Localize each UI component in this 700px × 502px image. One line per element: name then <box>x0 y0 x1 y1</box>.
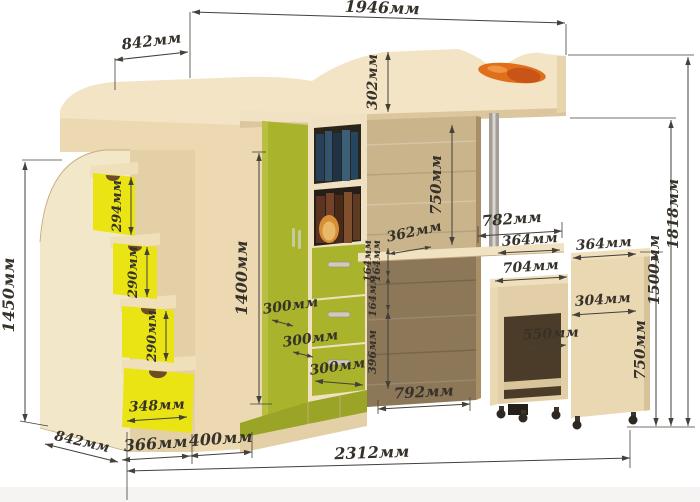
dim-arrowhead <box>110 457 118 462</box>
caster-wheel <box>552 411 561 420</box>
dim-arrowhead <box>668 418 673 426</box>
caster-wheel <box>629 416 638 425</box>
dim-arrowhead <box>182 454 190 459</box>
dim-label-step3_height: 290мм <box>145 310 160 363</box>
dim-label-rail_height: 302мм <box>365 54 381 110</box>
dim-line-base_width_2 <box>190 452 252 456</box>
dim-label-desk_inner_width: 704мм <box>502 257 559 277</box>
dim-arrowhead <box>115 56 123 61</box>
diagram-svg: 1946мм842мм302мм750мм1400мм294мм290мм290… <box>0 0 700 502</box>
dim-label-bottom_drawer_width: 348мм <box>128 397 185 416</box>
dim-label-niche_width: 792мм <box>393 381 454 402</box>
dim-arrowhead <box>685 418 690 426</box>
dim-arrowhead <box>653 418 658 426</box>
dim-arrowhead <box>127 468 135 473</box>
dim-arrowhead <box>668 120 673 128</box>
wardrobe-door-highlight <box>262 121 268 423</box>
dim-label-lower_section_height: 396мм <box>366 330 379 374</box>
dim-arrowhead <box>192 10 200 15</box>
dim-arrowhead <box>180 50 188 55</box>
dim-arrowhead <box>22 414 27 422</box>
back-panel-edge <box>476 116 481 400</box>
caster-wheel <box>519 414 528 423</box>
drawer-1-handle <box>328 262 350 267</box>
furniture-dimension-diagram: 1946мм842мм302мм750мм1400мм294мм290мм290… <box>0 0 700 502</box>
dim-arrowhead <box>378 406 386 411</box>
wardrobe-door <box>262 121 308 423</box>
dim-arrowhead <box>622 456 630 461</box>
dim-label-stairs_height: 1450мм <box>0 258 18 333</box>
dim-label-desk_width: 782мм <box>481 208 542 230</box>
dim-label-drawer3_height: 164мм <box>367 275 379 317</box>
caster-wheel <box>573 421 582 430</box>
dim-label-top_width: 1946мм <box>344 0 420 18</box>
dim-label-underbed_height: 750мм <box>427 155 445 215</box>
dim-line-base_width_1 <box>122 456 190 460</box>
dim-label-wardrobe_height: 1400мм <box>232 241 251 316</box>
support-pole-highlight <box>493 113 496 254</box>
drawer-2-handle <box>328 312 350 317</box>
mid-cart-stile <box>490 287 498 406</box>
door-handle-left <box>292 228 295 247</box>
watermark-strip <box>0 487 700 502</box>
dim-label-knee_space: 550мм <box>522 325 579 344</box>
dim-label-cart_height: 750мм <box>631 320 649 380</box>
door-handle-right <box>298 230 301 249</box>
dim-label-top_left_width: 842мм <box>121 28 183 53</box>
dim-arrowhead <box>122 457 130 462</box>
caster-wheel <box>497 410 506 419</box>
books-top-shelf <box>316 130 358 181</box>
dim-label-total_height: 1818мм <box>664 179 682 249</box>
dim-arrowhead <box>685 57 690 65</box>
dim-label-bed_platform_height: 1500мм <box>645 235 663 305</box>
dim-arrowhead <box>462 402 470 407</box>
orange-jar-label <box>323 222 336 241</box>
dim-label-total_width: 2312мм <box>333 442 410 464</box>
bed-end-cap <box>557 56 566 113</box>
dim-label-step1_height: 294мм <box>110 180 125 233</box>
dim-arrowhead <box>45 443 53 448</box>
drawer-1 <box>312 244 365 299</box>
furniture <box>0 49 700 502</box>
dim-label-step2_height: 290мм <box>126 246 141 299</box>
dim-arrowhead <box>22 162 27 170</box>
dim-arrowhead <box>557 20 565 25</box>
